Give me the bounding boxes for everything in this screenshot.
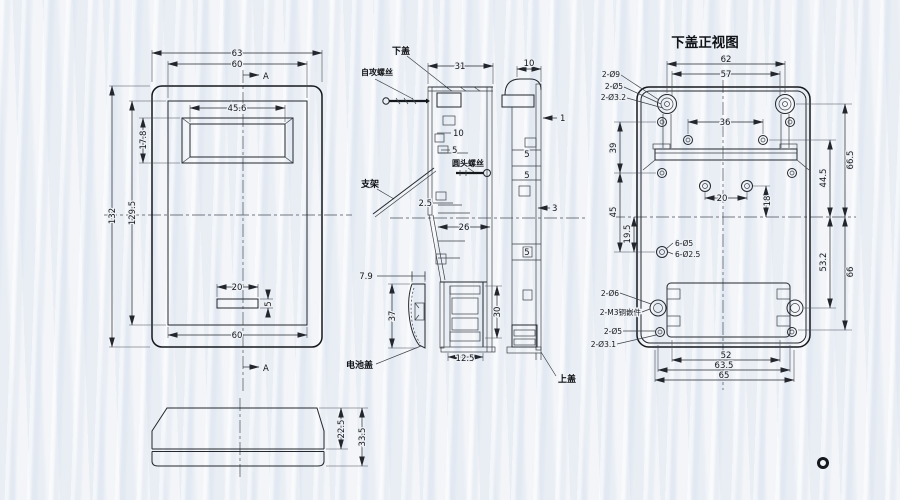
callout-2-d3-1: 2-Ø3.1: [591, 340, 617, 349]
dim-63: 63: [232, 49, 243, 59]
dim-132: 132: [108, 208, 118, 224]
dim-1-wall: 1: [560, 114, 565, 124]
dim-10-rib: 10: [453, 129, 464, 139]
dim-60-bottom: 60: [232, 331, 243, 341]
callout-2-d5-bottom: 2-Ø5: [604, 327, 622, 336]
dim-45-6: 45.6: [228, 104, 247, 114]
label-self-tapping-screw: 自攻螺丝: [361, 67, 393, 77]
dim-31: 31: [455, 62, 466, 72]
label-bracket: 支架: [360, 178, 379, 190]
callout-6-d2-5: 6-Ø2.5: [675, 250, 701, 259]
dim-60-top: 60: [232, 60, 243, 70]
dim-129-5: 129.5: [128, 201, 138, 225]
callout-2-d5-top: 2-Ø5: [605, 82, 623, 91]
dim-5-c: 5: [524, 248, 529, 258]
top-cover-section-view: 10 1 5 5 3 5 上盖: [502, 59, 576, 385]
dim-39: 39: [609, 143, 619, 154]
ring-mark: [819, 459, 828, 468]
dim-26: 26: [459, 223, 470, 233]
front-view: 63 60 A A 45.6 17.8 132 129.5 20 5: [104, 49, 352, 392]
dim-37: 37: [388, 311, 398, 322]
label-bottom-cover: 下盖: [392, 45, 410, 57]
dim-53-2: 53.2: [819, 253, 829, 272]
dim-7-9: 7.9: [359, 272, 373, 282]
dim-12-5: 12.5: [456, 354, 475, 364]
callout-2-m3-insert: 2-M3铜嵌件: [600, 307, 642, 317]
dim-20: 20: [717, 194, 728, 204]
section-label-a-top: A: [263, 72, 269, 82]
label-round-head-screw: 圆头螺丝: [452, 158, 484, 168]
dim-3: 3: [552, 204, 557, 214]
label-battery-cover: 电池盖: [346, 359, 373, 371]
dim-5-b: 5: [524, 171, 529, 181]
callout-2-d9: 2-Ø9: [602, 70, 620, 79]
dim-36: 36: [720, 118, 731, 128]
dim-22-5: 22.5: [337, 420, 347, 439]
dim-5-slot: 5: [264, 301, 274, 306]
dim-19-5: 19.5: [623, 225, 633, 244]
dim-5-a: 5: [524, 150, 529, 160]
section-label-a-bottom: A: [263, 364, 269, 374]
dim-66: 66: [846, 267, 856, 278]
dim-45: 45: [609, 207, 619, 218]
dim-20-slot: 20: [232, 283, 243, 293]
dim-17-8: 17.8: [139, 131, 149, 150]
dim-2-5: 2.5: [418, 199, 432, 209]
callout-2-d3-2: 2-Ø3.2: [601, 93, 627, 102]
view-title: 下盖正视图: [671, 34, 739, 51]
dim-63-5: 63.5: [715, 361, 734, 371]
cad-drawing-sheet: 63 60 A A 45.6 17.8 132 129.5 20 5: [0, 0, 900, 500]
callout-2-d6: 2-Ø6: [601, 289, 619, 298]
callout-6-d5: 6-Ø5: [675, 239, 693, 248]
dim-57: 57: [721, 70, 732, 80]
dim-5-rib: 5: [452, 146, 457, 156]
dim-10-depth: 10: [524, 59, 535, 69]
bottom-cover-view: 下盖正视图 62 57 2-Ø9 2-Ø5 2-Ø3.2 36: [591, 34, 856, 390]
profile-view: 22.5 33.5: [152, 398, 368, 478]
dim-30: 30: [493, 307, 503, 318]
label-top-cover: 上盖: [558, 373, 576, 385]
dim-52: 52: [721, 351, 732, 361]
dim-44-5: 44.5: [819, 169, 829, 188]
dim-66-5: 66.5: [846, 151, 856, 170]
dim-18: 18: [763, 196, 773, 207]
dim-65: 65: [719, 371, 730, 381]
drawing-canvas: 63 60 A A 45.6 17.8 132 129.5 20 5: [0, 0, 900, 500]
dim-62: 62: [721, 55, 732, 65]
dim-33-5: 33.5: [358, 428, 368, 447]
